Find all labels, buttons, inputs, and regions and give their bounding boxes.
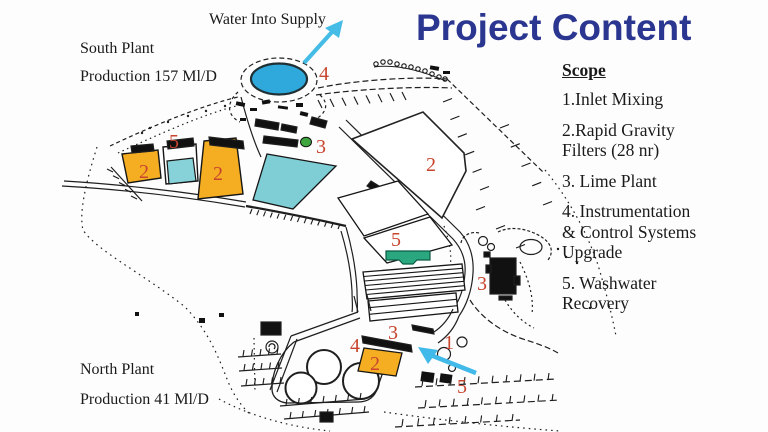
- svg-text:2: 2: [426, 154, 436, 176]
- svg-text:3: 3: [316, 136, 326, 158]
- svg-text:2: 2: [213, 163, 223, 185]
- svg-text:2: 2: [139, 161, 149, 183]
- svg-text:1: 1: [444, 332, 454, 354]
- svg-text:5: 5: [391, 229, 401, 251]
- svg-text:3: 3: [388, 322, 398, 344]
- svg-text:5: 5: [169, 131, 179, 153]
- svg-text:5: 5: [457, 376, 467, 398]
- svg-text:3: 3: [477, 273, 487, 295]
- svg-text:2: 2: [370, 353, 380, 375]
- svg-text:4: 4: [319, 63, 329, 85]
- svg-text:4: 4: [350, 335, 360, 357]
